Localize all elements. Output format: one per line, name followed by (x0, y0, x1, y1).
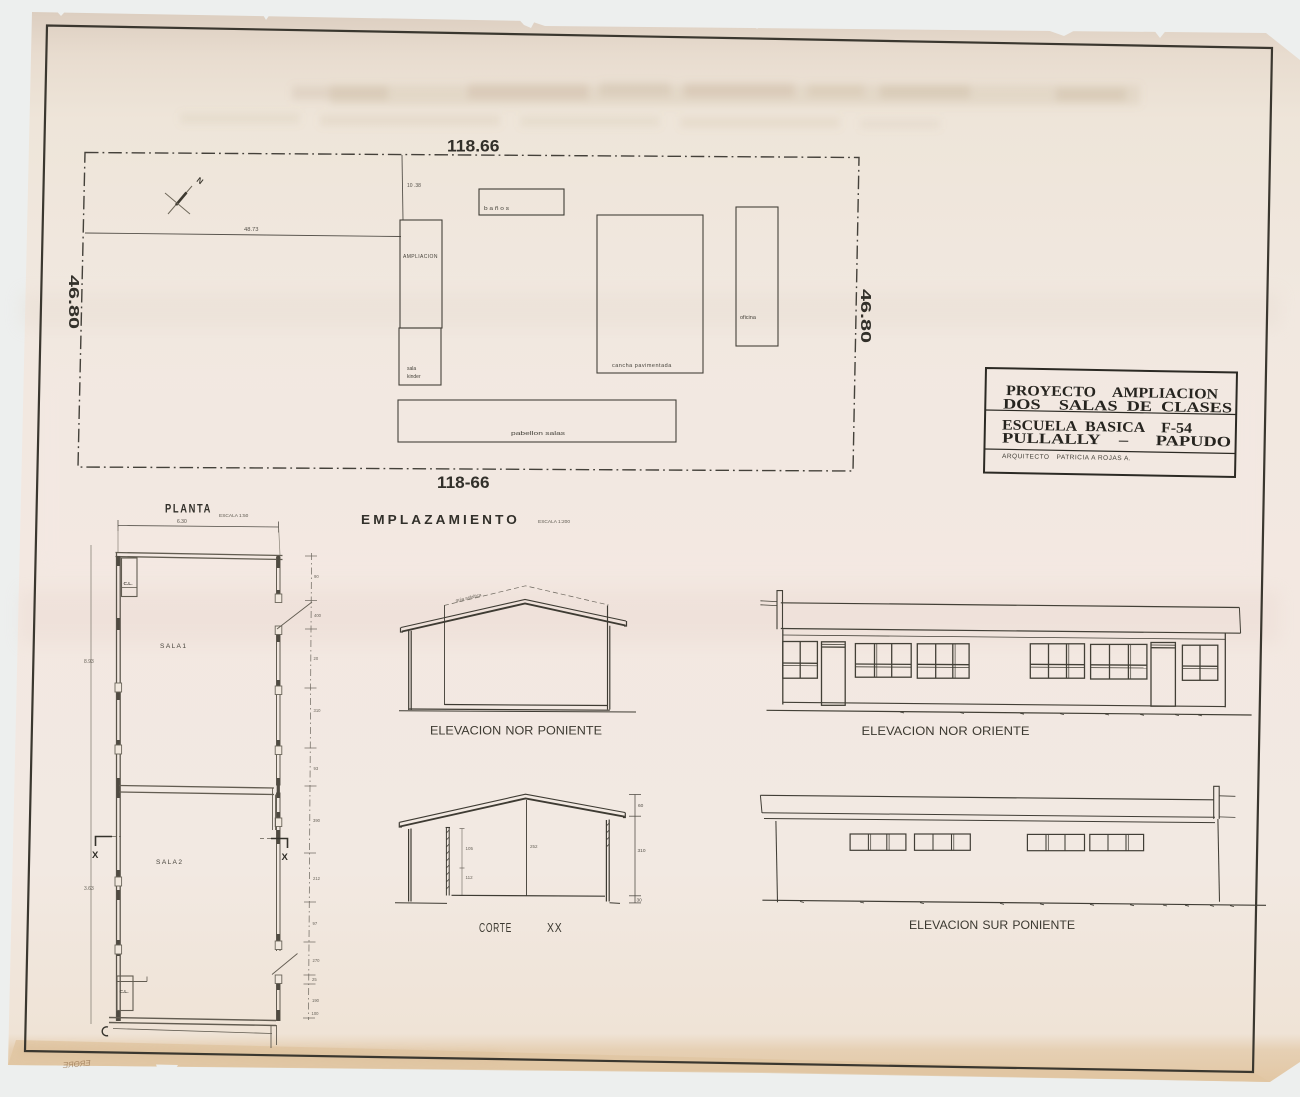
svg-text:112: 112 (466, 875, 474, 880)
svg-text:X: X (282, 852, 289, 863)
svg-text:400: 400 (314, 613, 322, 618)
svg-text:60: 60 (638, 803, 644, 809)
svg-text:ELEVACION SUR PONIENTE: ELEVACION SUR PONIENTE (909, 920, 1075, 932)
svg-text:118.66: 118.66 (447, 137, 500, 156)
svg-text:90: 90 (314, 574, 319, 579)
svg-text:310: 310 (638, 848, 646, 854)
svg-text:AMPLIACION: AMPLIACION (403, 254, 438, 260)
svg-text:212: 212 (313, 876, 321, 881)
svg-text:cancha pavimentada: cancha pavimentada (612, 363, 672, 369)
svg-text:118-66: 118-66 (437, 473, 490, 492)
svg-text:PLANTA: PLANTA (165, 504, 212, 516)
svg-text:b a ñ o s: b a ñ o s (484, 206, 509, 212)
svg-text:EMPLAZAMIENTO: EMPLAZAMIENTO (361, 512, 520, 527)
svg-text:93: 93 (314, 766, 319, 771)
svg-text:S A L A 2: S A L A 2 (156, 860, 183, 866)
svg-text:ESCALA 1:200: ESCALA 1:200 (538, 519, 570, 525)
svg-text:kinder: kinder (407, 374, 421, 380)
svg-text:6.30: 6.30 (177, 519, 187, 525)
svg-text:oficina: oficina (740, 315, 757, 321)
svg-text:310: 310 (314, 708, 322, 713)
svg-text:pabellon salas: pabellon salas (511, 431, 565, 437)
svg-text:10 .38: 10 .38 (407, 183, 421, 189)
svg-text:25: 25 (312, 977, 317, 982)
svg-text:30: 30 (637, 898, 643, 904)
svg-text:105: 105 (466, 846, 474, 851)
svg-text:CORTE: CORTE (479, 920, 512, 935)
svg-text:ESCALA 1:50: ESCALA 1:50 (219, 513, 249, 519)
svg-text:XX: XX (547, 920, 563, 935)
svg-text:390: 390 (313, 818, 321, 823)
svg-text:100: 100 (312, 1011, 320, 1016)
svg-text:ELEVACION NOR ORIENTE: ELEVACION NOR ORIENTE (862, 726, 1030, 738)
svg-text:sala: sala (407, 366, 416, 372)
svg-text:190: 190 (312, 998, 320, 1003)
svg-text:270: 270 (313, 958, 321, 963)
svg-text:8.93: 8.93 (84, 659, 94, 665)
svg-text:252: 252 (530, 844, 538, 849)
svg-text:ELEVACION NOR PONIENTE: ELEVACION NOR PONIENTE (430, 726, 602, 738)
svg-text:C.L.: C.L. (120, 989, 129, 995)
svg-text:48.73: 48.73 (244, 227, 259, 233)
svg-text:C.L.: C.L. (124, 581, 133, 587)
svg-text:46.80: 46.80 (65, 275, 82, 329)
svg-text:20: 20 (314, 656, 319, 661)
svg-text:X: X (92, 850, 99, 861)
svg-text:S A L A 1: S A L A 1 (160, 644, 187, 650)
svg-text:3.63: 3.63 (84, 886, 94, 892)
svg-text:97: 97 (313, 921, 318, 926)
svg-text:46.80: 46.80 (857, 289, 874, 343)
